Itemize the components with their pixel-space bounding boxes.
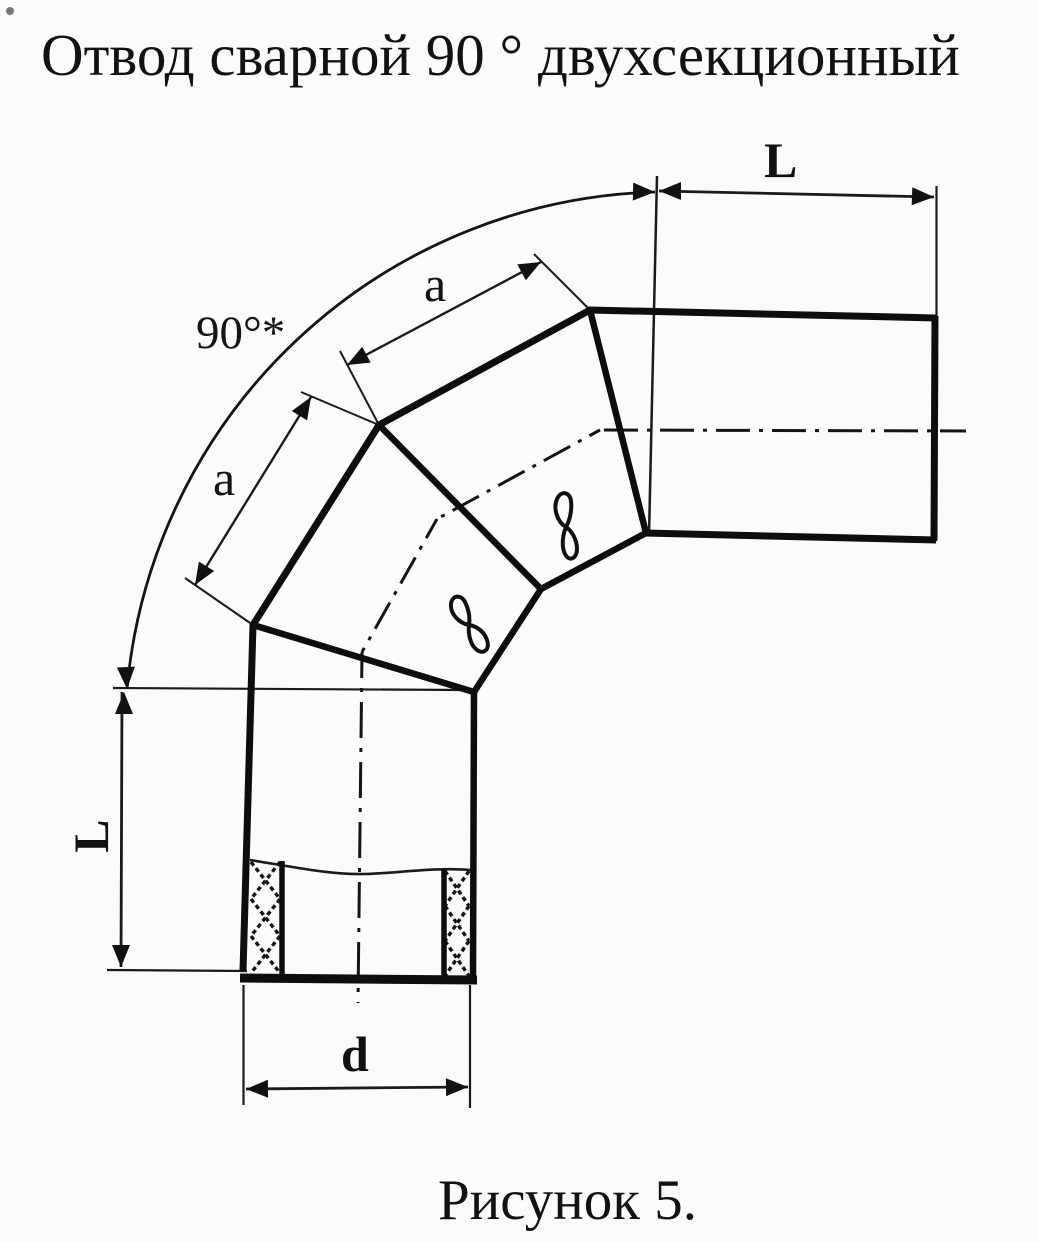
svg-text:Отвод сварной 90 ° двухсекцион: Отвод сварной 90 ° двухсекционный xyxy=(41,22,960,88)
svg-text:90°*: 90°* xyxy=(196,307,285,359)
svg-text:a: a xyxy=(424,256,446,312)
svg-text:Рисунок 5.: Рисунок 5. xyxy=(438,1169,697,1232)
svg-text:a: a xyxy=(213,450,235,506)
svg-text:d: d xyxy=(341,1026,369,1082)
svg-text:L: L xyxy=(764,132,797,188)
svg-text:L: L xyxy=(63,819,119,852)
